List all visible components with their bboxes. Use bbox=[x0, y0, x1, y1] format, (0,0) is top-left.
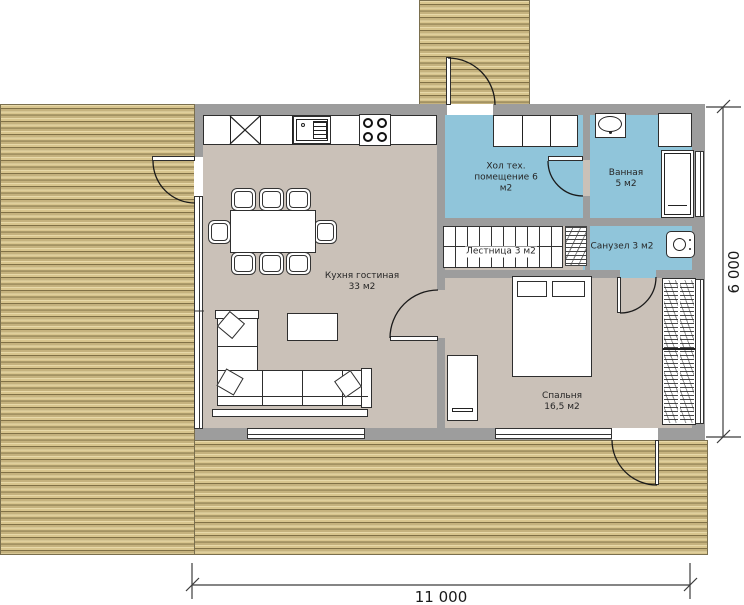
label-stairs: Лестница 3 м2 bbox=[465, 247, 537, 258]
toilet bbox=[666, 231, 695, 258]
wall-left-top bbox=[195, 104, 203, 157]
label-line: помещение 6 bbox=[474, 173, 538, 184]
deck-bottom bbox=[194, 440, 708, 555]
wall-hall-stairs bbox=[437, 218, 692, 226]
terrace-door-leaf bbox=[152, 156, 195, 161]
label-line: Санузел 3 м2 bbox=[590, 242, 653, 253]
sink-bowl bbox=[598, 116, 622, 132]
living-hall-door-leaf bbox=[390, 336, 438, 341]
counter-divider bbox=[230, 116, 231, 144]
bedroom-terrace-door-leaf bbox=[655, 440, 659, 485]
entrance-door-opening bbox=[447, 104, 493, 115]
bathtub-line bbox=[668, 205, 687, 206]
label-line: Хол тех. bbox=[474, 162, 538, 173]
sofa-seam bbox=[218, 346, 257, 347]
dining-chair bbox=[314, 220, 337, 244]
counter-divider bbox=[260, 116, 261, 144]
window-bedroom bbox=[495, 428, 612, 439]
window-left-glass-wall bbox=[194, 196, 203, 429]
dining-chair bbox=[259, 188, 284, 211]
dining-chair bbox=[231, 188, 256, 211]
bedroom-terrace-door-opening bbox=[612, 428, 658, 440]
hall-bath-door-leaf bbox=[548, 156, 583, 161]
sofa-seam bbox=[302, 371, 303, 405]
wall-top-left bbox=[195, 104, 447, 115]
terrace-door-opening bbox=[194, 157, 203, 196]
wall-bedroom-right bbox=[656, 270, 692, 278]
window-bathroom bbox=[695, 151, 704, 217]
dining-chair bbox=[286, 252, 311, 275]
label-line: м2 bbox=[474, 184, 538, 195]
kitchen-sink bbox=[293, 116, 331, 144]
tv-bench bbox=[212, 409, 368, 417]
stove bbox=[359, 114, 391, 146]
cabinet-handle bbox=[452, 408, 473, 412]
stove-burner-icon bbox=[377, 132, 387, 142]
label-line: Спальня bbox=[542, 391, 582, 402]
wall-center-lower bbox=[437, 338, 445, 429]
toilet-bowl bbox=[673, 238, 686, 251]
dining-table bbox=[230, 210, 316, 253]
dining-chair bbox=[208, 220, 231, 244]
label-bathroom: Ванная 5 м2 bbox=[609, 168, 643, 190]
hall-cabinets bbox=[493, 115, 578, 147]
toilet-dot bbox=[689, 239, 691, 241]
stove-burner-icon bbox=[363, 132, 373, 142]
floor-plan: Кухня гостиная 33 м2 Хол тех. помещение … bbox=[0, 0, 744, 605]
toilet-dot bbox=[689, 248, 691, 250]
label-line: 5 м2 bbox=[609, 179, 643, 190]
porch-top bbox=[419, 0, 530, 105]
bathroom-sink bbox=[595, 113, 626, 138]
wardrobe bbox=[662, 278, 696, 425]
label-hall-tech: Хол тех. помещение 6 м2 bbox=[474, 162, 538, 195]
stove-burner-icon bbox=[363, 118, 373, 128]
sofa-seam bbox=[262, 371, 263, 405]
sink-drain-icon bbox=[609, 131, 612, 134]
cabinet-divider bbox=[550, 116, 551, 146]
label-line: Кухня гостиная bbox=[325, 271, 399, 282]
dining-chair bbox=[286, 188, 311, 211]
window-living-room bbox=[247, 428, 365, 439]
dimension-height-label: 6 000 bbox=[725, 251, 743, 294]
label-line: 16,5 м2 bbox=[542, 402, 582, 413]
stove-burner-icon bbox=[377, 118, 387, 128]
window-bedroom-right bbox=[695, 279, 704, 424]
bedroom-door-leaf bbox=[617, 277, 621, 313]
bedroom-cabinet bbox=[447, 355, 478, 421]
wardrobe-hanging-section bbox=[680, 280, 694, 423]
dining-chair bbox=[259, 252, 284, 275]
sofa-armrest bbox=[361, 368, 372, 408]
wardrobe-shelf bbox=[663, 348, 695, 350]
cabinet-divider bbox=[522, 116, 523, 146]
loft-ladder bbox=[565, 226, 587, 266]
label-wc: Санузел 3 м2 bbox=[590, 242, 653, 253]
deck-left bbox=[0, 104, 195, 555]
label-line: 33 м2 bbox=[325, 282, 399, 293]
wardrobe-hanging-section bbox=[664, 280, 678, 423]
label-line: Лестница 3 м2 bbox=[465, 247, 537, 258]
label-bedroom: Спальня 16,5 м2 bbox=[542, 391, 582, 413]
wall-hall-bath-upper bbox=[583, 115, 590, 160]
bed-pillow bbox=[552, 281, 585, 297]
bathtub bbox=[661, 150, 694, 218]
dimension-width-label: 11 000 bbox=[415, 588, 468, 605]
coffee-table bbox=[287, 313, 338, 341]
entrance-door-leaf bbox=[446, 57, 451, 105]
label-kitchen-living: Кухня гостиная 33 м2 bbox=[325, 271, 399, 293]
label-line: Ванная bbox=[609, 168, 643, 179]
bathroom-cabinet bbox=[658, 113, 692, 147]
sink-faucet-icon bbox=[301, 123, 305, 127]
wall-hall-bath-lower bbox=[583, 196, 590, 218]
sink-drainboard bbox=[313, 121, 327, 139]
dining-chair bbox=[231, 252, 256, 275]
bed-pillow bbox=[517, 281, 547, 297]
